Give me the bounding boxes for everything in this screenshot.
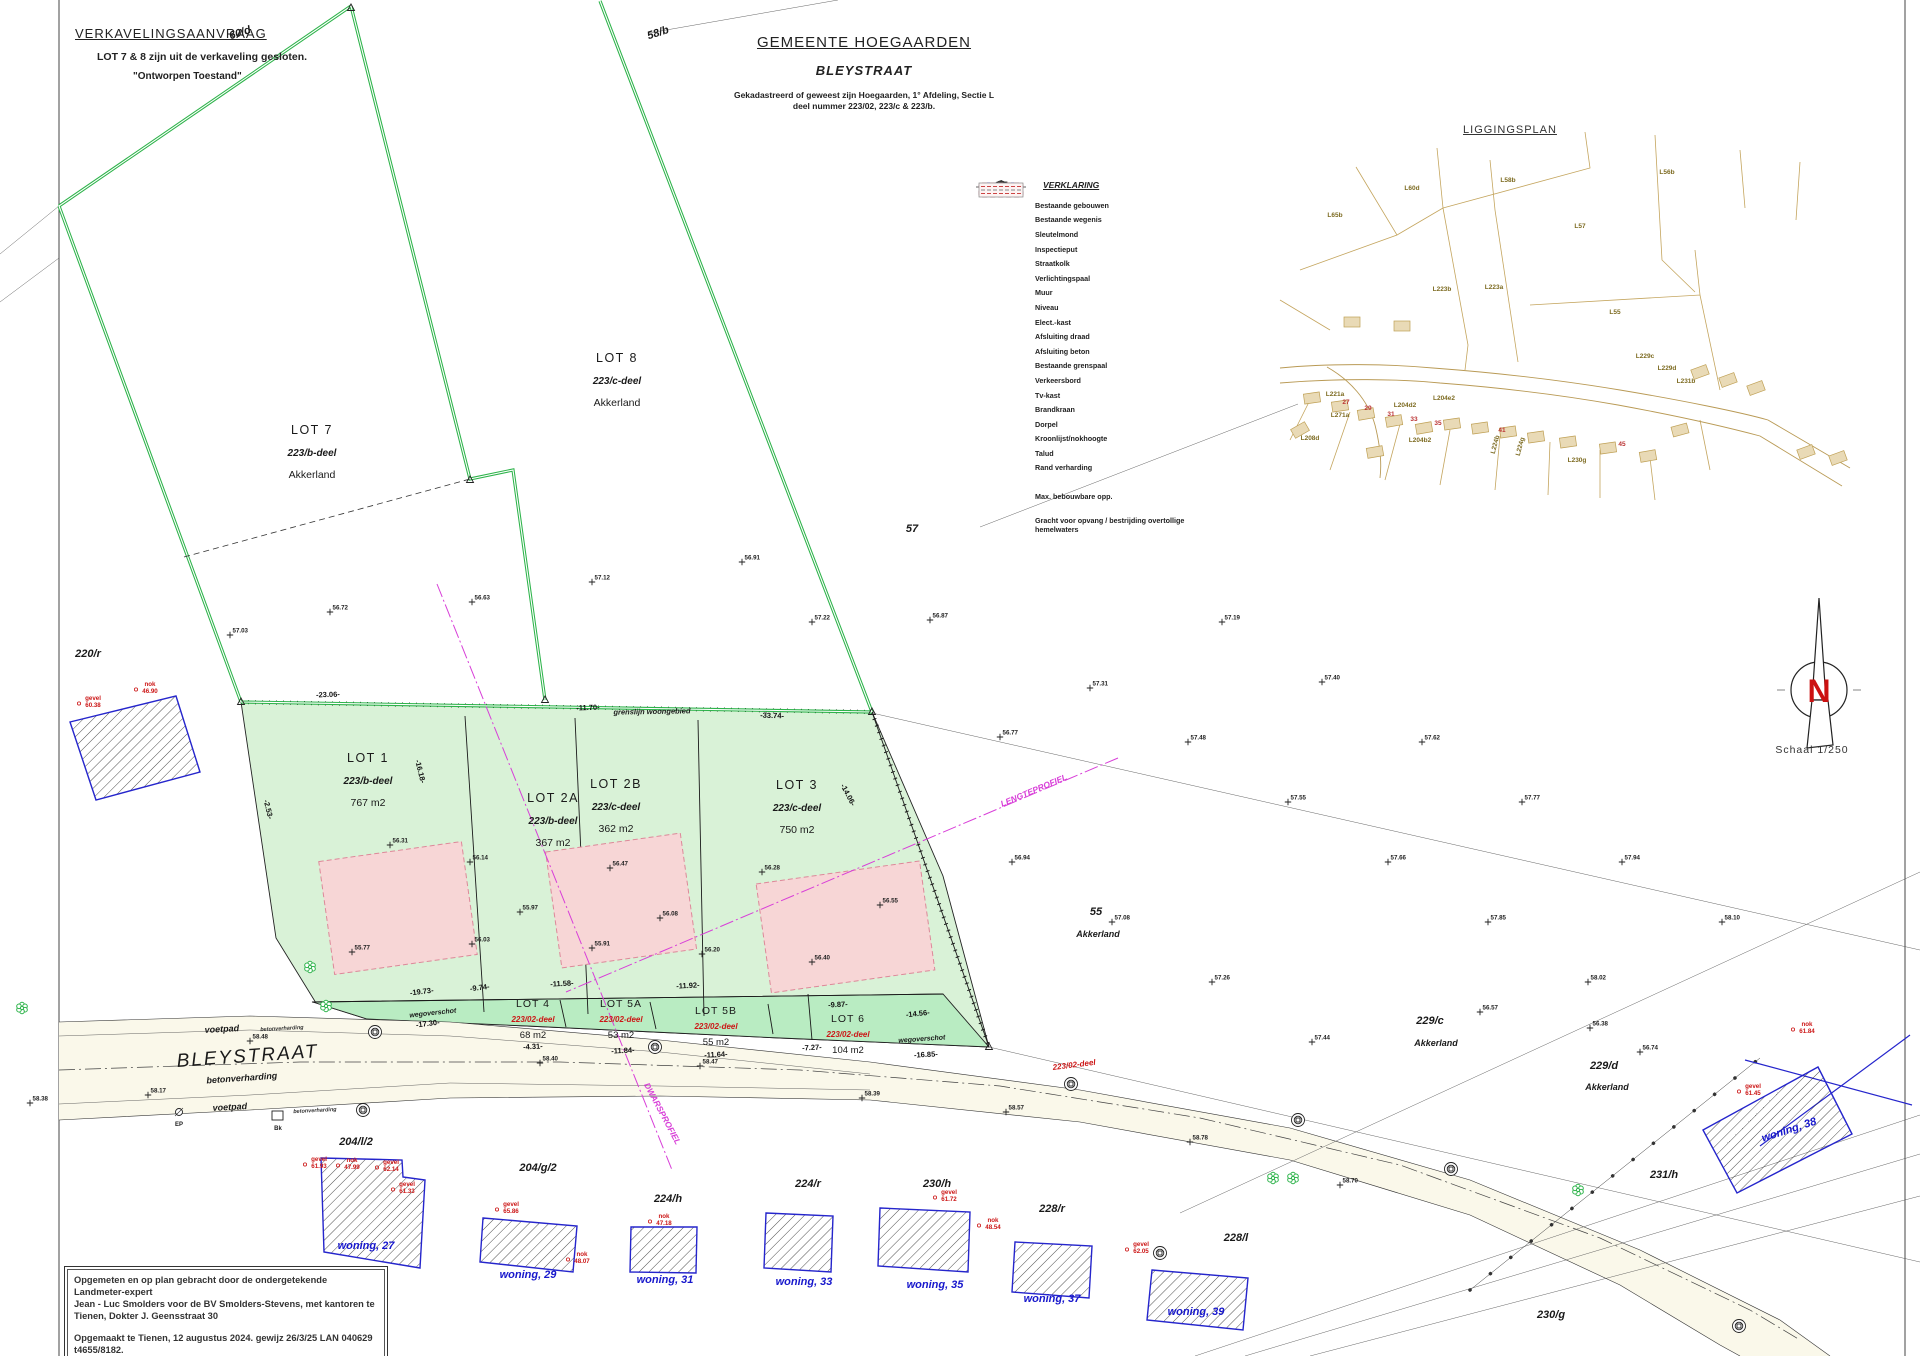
measurement-label: -4.31-	[523, 1041, 544, 1051]
map-label: woning, 37	[1024, 1293, 1082, 1305]
svg-text:LOT 6: LOT 6	[831, 1013, 865, 1025]
elevation-annotation: gevel 61.45	[1737, 1083, 1761, 1097]
measurement-label: -23.06-	[316, 690, 341, 700]
inspection-pit-icon	[369, 1026, 382, 1039]
lot-label-small: LOT 5B 223/02-deel 55 m2	[693, 1005, 738, 1048]
legend-row: Muur	[975, 286, 1215, 301]
inspection-pit-icon	[649, 1041, 662, 1054]
spot-height: 57.08	[1109, 915, 1131, 926]
inset-building	[1747, 381, 1765, 396]
svg-text:nok: nok	[144, 681, 156, 688]
map-label: 204/g/2	[518, 1162, 556, 1174]
inset-parcel-label: L208d	[1301, 435, 1320, 442]
map-label: Bk	[274, 1126, 282, 1132]
legend-row: Bk Brandkraan	[975, 402, 1215, 417]
north-letter: N	[1807, 673, 1830, 709]
svg-text:gevel: gevel	[85, 695, 101, 702]
svg-text:58.47: 58.47	[703, 1059, 719, 1066]
spot-height: 58.70	[1337, 1178, 1359, 1189]
svg-text:56.72: 56.72	[333, 605, 349, 612]
legend-row: Verkeersbord	[975, 373, 1215, 388]
svg-text:55 m2: 55 m2	[703, 1037, 729, 1048]
measurement-label: -11.92-	[676, 980, 700, 990]
svg-text:57.03: 57.03	[233, 628, 249, 635]
inset-parcel-label: L229c	[1636, 353, 1655, 360]
inset-parcel-label: L223a	[1485, 284, 1504, 291]
legend-row: tv Tv-kast	[975, 388, 1215, 403]
spot-height: 57.94	[1619, 855, 1641, 866]
map-label: voetpad	[212, 1101, 247, 1113]
legend-row: Bestaande gebouwen	[975, 198, 1215, 213]
spot-height: 57.22	[809, 615, 831, 626]
measurement-label: -33.74-	[760, 711, 785, 721]
inset-parcel-label: L223b	[1433, 286, 1452, 293]
svg-text:nok: nok	[1801, 1021, 1813, 1028]
inset-parcel-label: L229d	[1658, 365, 1677, 372]
svg-text:47.18: 47.18	[656, 1220, 672, 1227]
svg-text:LOT 8: LOT 8	[596, 351, 638, 365]
buildable-zone-lot2	[546, 833, 697, 968]
map-label: woning, 31	[637, 1274, 694, 1286]
legend-row: Verlichtingspaal	[975, 271, 1215, 286]
svg-text:56.94: 56.94	[1015, 855, 1031, 862]
svg-text:LOT 2B: LOT 2B	[590, 777, 642, 791]
measurement-label: -9.87-	[828, 999, 849, 1009]
svg-text:gevel: gevel	[311, 1156, 327, 1163]
legend-row: 10.63 Niveau	[975, 300, 1215, 315]
elevation-annotation: nok 46.90	[134, 681, 158, 695]
svg-text:57.94: 57.94	[1625, 855, 1641, 862]
inset-building	[1639, 450, 1656, 463]
buildable-zone-lot3	[756, 861, 935, 993]
inset-parcel-label: L231b	[1677, 378, 1696, 385]
svg-text:LOT 4: LOT 4	[516, 998, 550, 1010]
spot-height: 56.77	[997, 730, 1019, 741]
tree-icon	[1573, 1184, 1584, 1195]
inspection-pit-icon	[1154, 1247, 1167, 1260]
street-title: BLEYSTRAAT	[714, 63, 1014, 78]
inset-parcel-label: 29	[1364, 405, 1372, 412]
elevation-annotation: gevel 60.38	[77, 695, 101, 709]
inset-parcel-label: 33	[1410, 416, 1418, 423]
map-label: 229/d	[1589, 1060, 1618, 1072]
svg-text:56.38: 56.38	[1593, 1021, 1609, 1028]
sheet-frame	[0, 0, 1905, 1356]
inset-parcel-label: L271a	[1331, 412, 1350, 419]
svg-text:57.48: 57.48	[1191, 735, 1207, 742]
svg-text:367 m2: 367 m2	[535, 837, 570, 849]
inset-parcel-label: L56b	[1659, 169, 1674, 176]
legend-row: Ek Elect.-kast	[975, 315, 1215, 330]
svg-text:gevel: gevel	[503, 1201, 519, 1208]
inset-building	[1344, 317, 1360, 327]
map-label: 204/l/2	[338, 1136, 373, 1148]
inset-parcel-label: L58b	[1500, 177, 1515, 184]
inset-building	[1559, 436, 1576, 448]
spot-height: 57.62	[1419, 735, 1441, 746]
spot-height: 56.91	[739, 555, 761, 566]
inset-parcel-label: 45	[1618, 441, 1626, 448]
svg-text:62.05: 62.05	[1133, 1248, 1149, 1255]
spot-height: 57.12	[589, 575, 611, 586]
spot-height: 57.44	[1309, 1035, 1331, 1046]
map-label: 220/r	[74, 648, 101, 660]
inset-parcel-lines	[1280, 132, 1800, 500]
map-label: woning, 33	[776, 1276, 833, 1288]
svg-text:56.91: 56.91	[745, 555, 761, 562]
inset-building	[1303, 392, 1320, 404]
tree-icon	[1268, 1172, 1279, 1183]
svg-text:gevel: gevel	[1745, 1083, 1761, 1090]
svg-text:57.22: 57.22	[815, 615, 831, 622]
map-label: 224/h	[653, 1193, 682, 1205]
spot-height: 56.74	[1637, 1045, 1659, 1056]
existing-house	[70, 696, 200, 800]
inset-building	[1719, 373, 1737, 388]
spot-height: 57.55	[1285, 795, 1307, 806]
svg-text:58.70: 58.70	[1343, 1178, 1359, 1185]
inset-parcel-label: L224b	[1490, 435, 1502, 455]
spot-height: 58.38	[27, 1096, 49, 1107]
svg-text:57.19: 57.19	[1225, 615, 1241, 622]
svg-text:362 m2: 362 m2	[598, 823, 633, 835]
svg-text:55.77: 55.77	[355, 945, 371, 952]
svg-text:LOT 1: LOT 1	[347, 751, 389, 765]
existing-house	[1147, 1270, 1248, 1330]
svg-text:57.62: 57.62	[1425, 735, 1441, 742]
svg-text:57.12: 57.12	[595, 575, 611, 582]
lot-label: LOT 8 223/c-deel Akkerland	[592, 351, 642, 409]
legend-row: Talud	[975, 446, 1215, 461]
svg-text:gevel: gevel	[1133, 1241, 1149, 1248]
svg-text:58.57: 58.57	[1009, 1105, 1025, 1112]
inset-road	[1280, 365, 1850, 486]
map-label: 58/b	[646, 24, 671, 42]
header-state: "Ontworpen Toestand"	[133, 71, 405, 82]
inset-parcel-label: 27	[1342, 399, 1350, 406]
hydrant-icon	[272, 1111, 283, 1120]
svg-text:767 m2: 767 m2	[350, 797, 385, 809]
inset-building	[1599, 442, 1616, 454]
inset-parcel-label: L224g	[1515, 437, 1527, 457]
elevation-annotation: nok 61.84	[1791, 1021, 1815, 1035]
legend-row: Bestaande wegenis	[975, 213, 1215, 228]
svg-text:68 m2: 68 m2	[520, 1030, 546, 1041]
svg-text:56.77: 56.77	[1003, 730, 1019, 737]
liggingsplan-title: LIGGINGSPLAN	[1430, 124, 1590, 136]
map-label: 228/l	[1223, 1232, 1249, 1244]
svg-text:223/b-deel: 223/b-deel	[343, 776, 393, 787]
svg-text:Akkerland: Akkerland	[594, 397, 641, 409]
elevation-annotation: nok 48.54	[977, 1217, 1001, 1231]
legend-row: Sleutelmond	[975, 227, 1215, 242]
inset-parcel-label: L57	[1574, 223, 1586, 230]
svg-text:gevel: gevel	[941, 1189, 957, 1196]
map-label: 55	[1090, 906, 1103, 918]
inset-parcel-label: L65b	[1327, 212, 1342, 219]
svg-text:61.93: 61.93	[311, 1163, 327, 1170]
inset-building	[1527, 431, 1544, 443]
svg-text:57.85: 57.85	[1491, 915, 1507, 922]
svg-text:56.31: 56.31	[393, 838, 409, 845]
lot-label-small: LOT 6 223/02-deel 104 m2	[825, 1013, 870, 1056]
spot-height: 57.85	[1485, 915, 1507, 926]
svg-text:57.31: 57.31	[1093, 681, 1109, 688]
measurement-label: -11.58-	[550, 978, 574, 988]
spot-height: 56.63	[469, 595, 491, 606]
svg-text:56.57: 56.57	[1483, 1005, 1499, 1012]
inset-parcel-label: 31	[1387, 411, 1395, 418]
spot-height: 56.87	[927, 613, 949, 624]
inset-parcel-label: 41	[1498, 427, 1506, 434]
map-label: woning, 39	[1168, 1306, 1226, 1318]
road-parcel-label: 223/02-deel	[1051, 1058, 1097, 1072]
tree-icon	[17, 1002, 28, 1013]
spot-height: 57.31	[1087, 681, 1109, 692]
elevation-annotation: nok 47.18	[648, 1213, 672, 1227]
svg-text:55.97: 55.97	[523, 905, 539, 912]
existing-house	[1012, 1242, 1092, 1298]
map-label: 224/r	[794, 1178, 821, 1190]
spot-height: 57.66	[1385, 855, 1407, 866]
svg-text:58.02: 58.02	[1591, 975, 1607, 982]
inset-parcel-label: 35	[1434, 420, 1442, 427]
attribution-text: Opgemeten en op plan gebracht door de on…	[67, 1269, 385, 1356]
spot-height: 56.94	[1009, 855, 1031, 866]
legend-row: Dorpel	[975, 417, 1215, 432]
spot-height: 57.26	[1209, 975, 1231, 986]
inset-parcel-label: L55	[1609, 309, 1621, 316]
svg-text:223/02-deel: 223/02-deel	[598, 1015, 643, 1024]
inspection-pit-icon	[357, 1104, 370, 1117]
existing-house	[878, 1208, 970, 1272]
inspection-pit-icon	[1065, 1078, 1078, 1091]
inset-building	[1366, 446, 1383, 459]
municipality-title: GEMEENTE HOEGAARDEN	[714, 34, 1014, 51]
svg-text:nok: nok	[576, 1251, 588, 1258]
measurement-label: -7.27-	[802, 1042, 823, 1052]
legend-row: Rand verharding	[975, 461, 1215, 476]
map-label: Akkerland	[1075, 929, 1120, 939]
svg-text:48.54: 48.54	[985, 1224, 1001, 1231]
svg-text:223/02-deel: 223/02-deel	[825, 1030, 870, 1039]
inset-parcel-label: L204b2	[1409, 437, 1432, 444]
scale-label: Schaal 1/250	[1752, 744, 1872, 756]
lot-label: LOT 1 223/b-deel 767 m2	[343, 751, 393, 809]
svg-text:57.44: 57.44	[1315, 1035, 1331, 1042]
north-arrow: N	[1777, 598, 1861, 748]
title-block: GEMEENTE HOEGAARDEN BLEYSTRAAT Gekadastr…	[714, 34, 1014, 113]
legend: VERKLARING Bestaande gebouwen Bestaande …	[975, 180, 1215, 532]
svg-text:56.74: 56.74	[1643, 1045, 1659, 1052]
header-note: LOT 7 & 8 zijn uit de verkaveling geslot…	[97, 51, 405, 63]
svg-text:58.40: 58.40	[543, 1056, 559, 1063]
spot-height: 57.03	[227, 628, 249, 639]
spot-height: 57.48	[1185, 735, 1207, 746]
map-label: EP	[175, 1122, 183, 1128]
svg-text:58.48: 58.48	[253, 1034, 269, 1041]
svg-text:Akkerland: Akkerland	[289, 469, 336, 481]
spot-height: 58.02	[1585, 975, 1607, 986]
elevation-annotation: gevel 65.86	[495, 1201, 519, 1215]
measurement-label: -11.84-	[611, 1045, 635, 1055]
legend-row: Afsluiting beton	[975, 344, 1215, 359]
svg-text:LOT 7: LOT 7	[291, 423, 333, 437]
svg-text:61.33: 61.33	[399, 1188, 415, 1195]
svg-text:58.10: 58.10	[1725, 915, 1741, 922]
inset-parcel-label: L230g	[1568, 457, 1587, 464]
svg-text:58.38: 58.38	[33, 1096, 49, 1103]
svg-text:223/02-deel: 223/02-deel	[693, 1022, 738, 1031]
svg-text:223/c-deel: 223/c-deel	[772, 803, 822, 814]
svg-text:223/c-deel: 223/c-deel	[592, 376, 642, 387]
map-label: Akkerland	[1413, 1038, 1458, 1048]
svg-text:60.38: 60.38	[85, 702, 101, 709]
existing-house	[480, 1218, 577, 1272]
inset-parcel-label: L60d	[1404, 185, 1419, 192]
inset-building	[1443, 418, 1460, 430]
svg-text:55.91: 55.91	[595, 941, 611, 948]
profile-label: LENGTEPROFIEL	[999, 772, 1069, 809]
legend-row: Max. bebouwbare opp.	[975, 489, 1215, 504]
svg-text:56.47: 56.47	[613, 861, 629, 868]
svg-text:223/c-deel: 223/c-deel	[591, 802, 641, 813]
legend-row: Bestaande grenspaal	[975, 359, 1215, 374]
spot-height: 56.72	[327, 605, 349, 616]
svg-text:LOT 5B: LOT 5B	[695, 1005, 737, 1017]
inset-building	[1671, 423, 1689, 437]
inset-building	[1797, 445, 1815, 460]
map-label: 231/h	[1649, 1169, 1678, 1181]
svg-text:57.08: 57.08	[1115, 915, 1131, 922]
svg-text:56.63: 56.63	[475, 595, 491, 602]
svg-text:56.14: 56.14	[473, 855, 489, 862]
svg-text:56.28: 56.28	[765, 865, 781, 872]
legend-row: Afsluiting draad	[975, 329, 1215, 344]
svg-text:57.77: 57.77	[1525, 795, 1541, 802]
svg-text:57.55: 57.55	[1291, 795, 1307, 802]
inset-parcel-label: L221a	[1326, 391, 1345, 398]
legend-row: Kroonlijst/nokhoogte	[975, 432, 1215, 447]
map-label: woning, 27	[338, 1240, 396, 1252]
map-label: 57	[906, 523, 919, 535]
map-label: woning, 35	[907, 1279, 965, 1291]
svg-text:58.39: 58.39	[865, 1091, 881, 1098]
map-label: 228/r	[1038, 1203, 1065, 1215]
elevation-annotation: gevel 61.93	[303, 1156, 327, 1170]
inset-parcel-label: L204e2	[1433, 395, 1455, 402]
page-title: VERKAVELINGSAANVRAAG	[75, 26, 405, 41]
spot-height: 58.10	[1719, 915, 1741, 926]
inspection-pit-icon	[1445, 1163, 1458, 1176]
lot-label-small: LOT 5A 223/02-deel 53 m2	[598, 998, 643, 1041]
svg-text:223/b-deel: 223/b-deel	[287, 448, 337, 459]
svg-text:65.86: 65.86	[503, 1208, 519, 1215]
map-label: 230/g	[1536, 1309, 1565, 1321]
lot-label: LOT 3 223/c-deel 750 m2	[772, 778, 822, 836]
svg-text:223/02-deel: 223/02-deel	[1051, 1058, 1097, 1072]
elevation-annotation: gevel 62.05	[1125, 1241, 1149, 1255]
svg-text:56.20: 56.20	[705, 947, 721, 954]
spot-height: 56.57	[1477, 1005, 1499, 1016]
svg-text:56.03: 56.03	[475, 937, 491, 944]
svg-text:56.87: 56.87	[933, 613, 949, 620]
inset-building	[1394, 321, 1410, 331]
existing-house	[630, 1227, 697, 1273]
svg-text:61.72: 61.72	[941, 1196, 957, 1203]
legend-title: VERKLARING	[1043, 180, 1215, 190]
elevation-annotation: gevel 61.72	[933, 1189, 957, 1203]
svg-text:56.08: 56.08	[663, 911, 679, 918]
attribution-box: Opgemeten en op plan gebracht door de on…	[64, 1266, 388, 1356]
existing-house	[764, 1213, 833, 1272]
svg-text:62.14: 62.14	[383, 1166, 399, 1173]
svg-text:223/02-deel: 223/02-deel	[510, 1015, 555, 1024]
map-label: grenslijn woongebied	[612, 706, 691, 716]
inset-building	[1829, 451, 1847, 466]
spot-height: 57.77	[1519, 795, 1541, 806]
cadastre-note: Gekadastreerd of geweest zijn Hoegaarden…	[714, 90, 1014, 113]
svg-text:57.66: 57.66	[1391, 855, 1407, 862]
header-block: VERKAVELINGSAANVRAAG LOT 7 & 8 zijn uit …	[75, 26, 405, 82]
svg-text:nok: nok	[987, 1217, 999, 1224]
plan-svg: L60dL58bL56bL57L65bL223bL223aL55L229cL22…	[0, 0, 1920, 1356]
survey-plan-page: L60dL58bL56bL57L65bL223bL223aL55L229cL22…	[0, 0, 1920, 1356]
measurement-label: -16.85-	[914, 1049, 939, 1059]
map-label: Akkerland	[1584, 1082, 1629, 1092]
lot-label: LOT 7 223/b-deel Akkerland	[287, 423, 337, 481]
svg-text:61.45: 61.45	[1745, 1090, 1761, 1097]
inspection-pit-icon	[1733, 1320, 1746, 1333]
svg-text:58.78: 58.78	[1193, 1135, 1209, 1142]
svg-text:nok: nok	[658, 1213, 670, 1220]
legend-row: Gracht voor opvang / bestrijding overtol…	[975, 518, 1215, 533]
inset-parcel-label: L204d2	[1394, 402, 1417, 409]
inset-building	[1415, 422, 1432, 435]
legend-row: Straatkolk	[975, 256, 1215, 271]
svg-text:53 m2: 53 m2	[608, 1030, 634, 1041]
svg-text:223/b-deel: 223/b-deel	[528, 816, 578, 827]
svg-text:750 m2: 750 m2	[779, 824, 814, 836]
svg-text:47.99: 47.99	[344, 1164, 360, 1171]
svg-text:57.26: 57.26	[1215, 975, 1231, 982]
svg-text:57.40: 57.40	[1325, 675, 1341, 682]
spot-height: 57.19	[1219, 615, 1241, 626]
svg-text:48.07: 48.07	[574, 1258, 590, 1265]
liggingsplan-inset: L60dL58bL56bL57L65bL223bL223aL55L229cL22…	[1280, 132, 1850, 500]
svg-text:LOT 5A: LOT 5A	[600, 998, 642, 1010]
buildable-zone-lot1	[319, 842, 477, 975]
svg-text:gevel: gevel	[383, 1159, 399, 1166]
map-label: betonverharding	[293, 1107, 337, 1115]
spot-height: 56.38	[1587, 1021, 1609, 1032]
svg-text:gevel: gevel	[399, 1181, 415, 1188]
tree-icon	[321, 1000, 332, 1011]
legend-row: Inspectieput	[975, 242, 1215, 257]
svg-text:46.90: 46.90	[142, 688, 158, 695]
spot-height: 57.40	[1319, 675, 1341, 686]
svg-text:LOT 3: LOT 3	[776, 778, 818, 792]
map-label: woning, 29	[500, 1269, 558, 1281]
tree-icon	[305, 961, 316, 972]
inspection-pit-icon	[1292, 1114, 1305, 1127]
svg-text:56.55: 56.55	[883, 898, 899, 905]
svg-text:nok: nok	[346, 1157, 358, 1164]
svg-text:58.17: 58.17	[151, 1088, 167, 1095]
inset-building	[1471, 422, 1488, 434]
svg-text:104 m2: 104 m2	[832, 1045, 864, 1056]
map-label: 229/c	[1415, 1015, 1444, 1027]
